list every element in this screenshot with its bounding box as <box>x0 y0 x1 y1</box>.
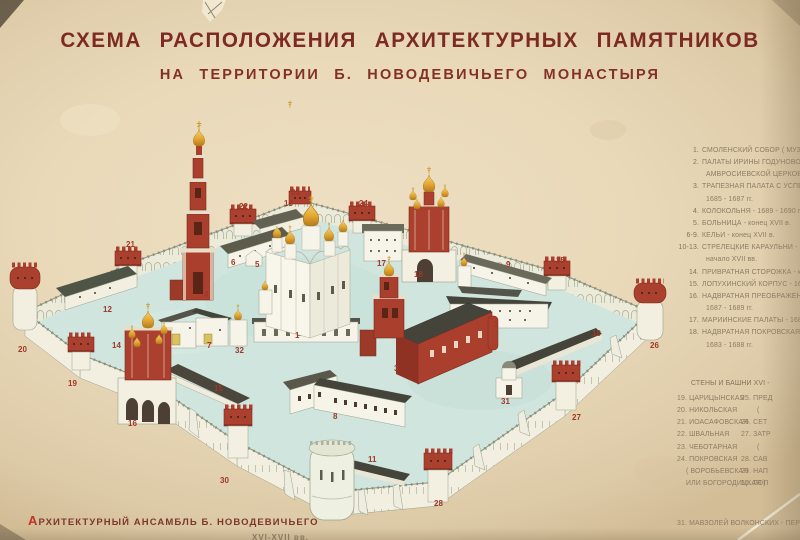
legend-tower-entry: 25. ПРЕД <box>741 393 800 405</box>
map-label-16: 16 <box>128 419 137 428</box>
legend-entry: 10-13.СТРЕЛЕЦКИЕ КАРАУЛЬНИ - к <box>677 242 800 254</box>
legend-list: 1.СМОЛЕНСКИЙ СОБОР ( МУЗЕЙ ) - 1522.ПАЛА… <box>677 145 800 352</box>
map-label-32: 32 <box>235 346 244 355</box>
map-label-17: 17 <box>377 259 386 268</box>
map-label-5: 5 <box>255 260 260 269</box>
map-label-2: 2 <box>494 320 499 329</box>
map-label-24: 24 <box>359 199 368 208</box>
map-label-10: 10 <box>592 329 601 338</box>
poster-title: СХЕМА РАСПОЛОЖЕНИЯ АРХИТЕКТУРНЫХ ПАМЯТНИ… <box>30 28 790 83</box>
legend-entry: 3.ТРАПЕЗНАЯ ПАЛАТА С УСПЕНСКОЙ <box>677 181 800 193</box>
caption-fragment: XVI-XVII вв. <box>252 533 309 540</box>
legend: 1.СМОЛЕНСКИЙ СОБОР ( МУЗЕЙ ) - 1522.ПАЛА… <box>677 145 800 540</box>
gate-church-pokrovskaya-18 <box>402 167 456 282</box>
legend-towers-header: СТЕНЫ И БАШНИ XVI - <box>677 378 800 390</box>
legend-tower-entry: 21. ИОАСАФОВСКАЯ <box>677 417 741 429</box>
legend-entry: 5.БОЛЬНИЦА - конец XVII в. <box>677 218 800 230</box>
poster-title-line2: НА ТЕРРИТОРИИ Б. НОВОДЕВИЧЬЕГО МОНАСТЫРЯ <box>30 67 790 83</box>
photo-corner-shadow-top-left <box>0 0 24 28</box>
legend-towers-col2: 25. ПРЕД(26. СЕТ27. ЗАТР(28. САВ29. НАП3… <box>741 393 800 491</box>
legend-entry: 18.НАДВРАТНАЯ ПОКРОВСКАЯ ЦЕР <box>677 327 800 339</box>
paper-tear-mark <box>202 0 226 22</box>
legend-tower-entry: 22. ШВАЛЬНАЯ <box>677 429 741 441</box>
small-cross-mark <box>288 101 292 108</box>
legend-entry: 14.ПРИВРАТНАЯ СТОРОЖКА - кон <box>677 267 800 279</box>
legend-entry: 17.МАРИИНСКИЕ ПАЛАТЫ - 1683 - <box>677 315 800 327</box>
map-label-15: 15 <box>214 384 223 393</box>
legend-entry: 2.ПАЛАТЫ ИРИНЫ ГОДУНОВОЙ С ТРА <box>677 157 800 169</box>
map-label-21: 21 <box>126 240 135 249</box>
legend-tower-entry: ( <box>741 442 800 454</box>
legend-tower-entry: 26. СЕТ <box>741 417 800 429</box>
legend-tower-entry: 28. САВ <box>741 454 800 466</box>
map-label-6: 6 <box>231 258 236 267</box>
legend-towers-col1: 19. ЦАРИЦЫНСКАЯ20. НИКОЛЬСКАЯ21. ИОАСАФО… <box>677 393 741 491</box>
legend-tower-entry: 30. ЛОП <box>741 478 800 490</box>
map-label-14: 14 <box>112 341 121 350</box>
map-label-22: 22 <box>239 202 248 211</box>
map-label-8: 8 <box>333 412 338 421</box>
legend-tower-entry: 23. ЧЕБОТАРНАЯ <box>677 442 741 454</box>
legend-entry: 1.СМОЛЕНСКИЙ СОБОР ( МУЗЕЙ ) - 152 <box>677 145 800 157</box>
legend-mausoleum-entry: 31. МАВЗОЛЕЙ ВОЛКОНСКИХ - ПЕР <box>677 518 800 530</box>
poster-photo: 1234567891011121314151617181920212223242… <box>0 0 800 540</box>
caption-initial: А <box>28 513 39 528</box>
legend-tower-entry: 20. НИКОЛЬСКАЯ <box>677 405 741 417</box>
legend-towers: 19. ЦАРИЦЫНСКАЯ20. НИКОЛЬСКАЯ21. ИОАСАФО… <box>677 393 800 491</box>
map-label-20: 20 <box>18 345 27 354</box>
poster-title-line1: СХЕМА РАСПОЛОЖЕНИЯ АРХИТЕКТУРНЫХ ПАМЯТНИ… <box>45 28 775 53</box>
caption-text: РХИТЕКТУРНЫЙ АНСАМБЛЬ Б. НОВОДЕВИЧЬЕГО <box>39 517 319 528</box>
map-label-7: 7 <box>207 341 212 350</box>
map-label-13: 13 <box>284 199 293 208</box>
legend-tower-entry: 27. ЗАТР <box>741 429 800 441</box>
map-label-3: 3 <box>394 364 399 373</box>
legend-tower-entry: ( <box>741 405 800 417</box>
legend-entry: 1687 - 1689 гг. <box>677 303 800 315</box>
map-label-26: 26 <box>650 341 659 350</box>
legend-entry: 1685 - 1687 гг. <box>677 194 800 206</box>
map-label-9: 9 <box>506 260 511 269</box>
map-label-4: 4 <box>204 290 209 299</box>
tower-26-round <box>634 281 666 340</box>
poster-caption: АРХИТЕКТУРНЫЙ АНСАМБЛЬ Б. НОВОДЕВИЧЬЕГО <box>28 513 319 528</box>
legend-entry: 1683 - 1688 гг. <box>677 340 800 352</box>
tower-19 <box>68 335 94 370</box>
map-label-11: 11 <box>368 455 377 464</box>
map-label-23: 23 <box>291 188 300 197</box>
legend-entry: 15.ЛОПУХИНСКИЙ КОРПУС - 1687-1 <box>677 279 800 291</box>
legend-tower-entry: ИЛИ БОГОРОДИЦКАЯ ) <box>677 478 741 490</box>
legend-entry: 4.КОЛОКОЛЬНЯ - 1689 - 1690 гг. <box>677 206 800 218</box>
tower-south-round <box>309 440 355 520</box>
map-label-27: 27 <box>572 413 581 422</box>
tower-20-round <box>10 265 40 330</box>
map-label-30: 30 <box>220 476 229 485</box>
map-label-18: 18 <box>414 270 423 279</box>
map-label-12: 12 <box>103 305 112 314</box>
legend-entry: АМВРОСИЕВСКОЙ ЦЕРКОВЬЮ - <box>677 169 800 181</box>
map-label-28: 28 <box>434 499 443 508</box>
legend-tower-entry: 24. ПОКРОВСКАЯ <box>677 454 741 466</box>
map-label-19: 19 <box>68 379 77 388</box>
legend-tower-entry: ( ВОРОБЬЕВСКАЯ <box>677 466 741 478</box>
legend-entry: 6-9.КЕЛЬИ - конец XVII в. <box>677 230 800 242</box>
legend-tower-entry: 19. ЦАРИЦЫНСКАЯ <box>677 393 741 405</box>
legend-entry: 16.НАДВРАТНАЯ ПРЕОБРАЖЕНСКАЯ <box>677 291 800 303</box>
mariinsky-chambers-17 <box>362 224 404 261</box>
legend-entry: начало XVII вв. <box>677 254 800 266</box>
map-label-31: 31 <box>501 397 510 406</box>
legend-tower-entry: 29. НАП <box>741 466 800 478</box>
map-label-1: 1 <box>295 331 300 340</box>
map-label-25: 25 <box>556 256 565 265</box>
tower-22 <box>230 207 256 236</box>
